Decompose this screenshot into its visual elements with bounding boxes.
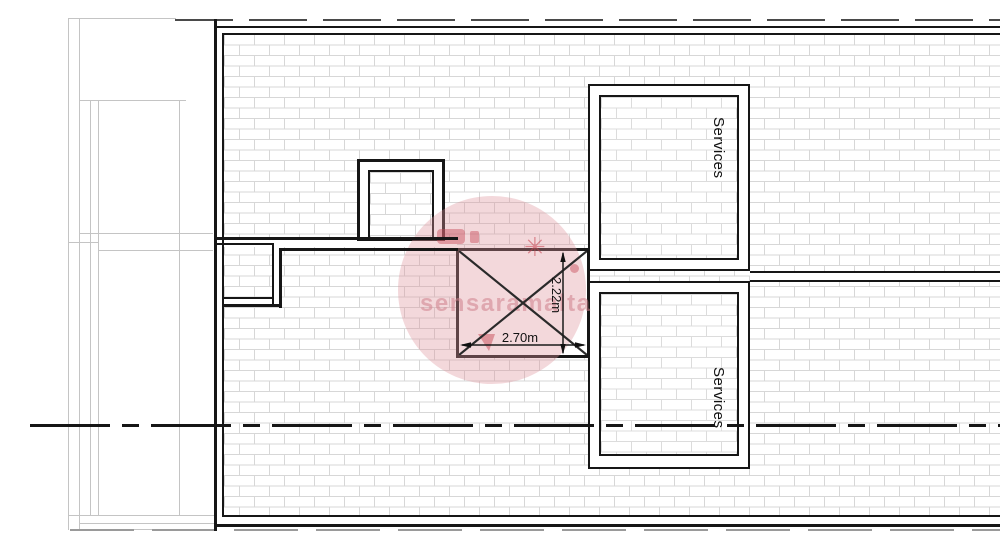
adjacent-structure-line [68,18,176,19]
wall-line [272,243,274,305]
adjacent-structure-line [79,233,213,234]
wall-line [222,33,224,517]
adjacent-structure-line [98,100,99,516]
services-room-2-label: Services [710,367,727,429]
adjacent-structure-line [68,18,69,530]
rooms-joint-band [750,272,1000,280]
wall-line [750,271,1000,273]
wall-line [214,237,458,240]
wall-line [222,33,1000,35]
watermark-logo-mark [470,231,479,243]
dimension-height-label: 2.22m [549,277,564,313]
wall-line [750,280,1000,282]
floor-plan: ✳ sensaramalta 2.70m 2.22m Services Serv… [0,0,1000,550]
adjacent-structure-line [68,242,98,243]
centerline [30,424,1000,427]
dimension-width-label: 2.70m [497,330,543,345]
wall-line [214,26,1000,28]
wall-line [214,524,1000,527]
wall-line [222,515,1000,517]
adjacent-structure-line [90,100,91,516]
wall-line [214,19,217,531]
boundary-dashed-line-bottom [70,529,1000,531]
adjacent-structure-line [79,100,186,101]
adjacent-structure-line [179,100,180,516]
adjacent-structure-line [79,523,215,524]
wall-line [279,248,282,308]
wall-line [222,297,274,299]
adjacent-structure-line [98,250,213,251]
adjacent-structure-line [79,18,80,530]
wall-line [214,243,274,245]
adjacent-structure-line [68,515,215,516]
services-room-1-label: Services [710,117,727,179]
wall-line [281,248,458,251]
boundary-dashed-line-top [175,19,1000,21]
wall-line [222,304,282,307]
